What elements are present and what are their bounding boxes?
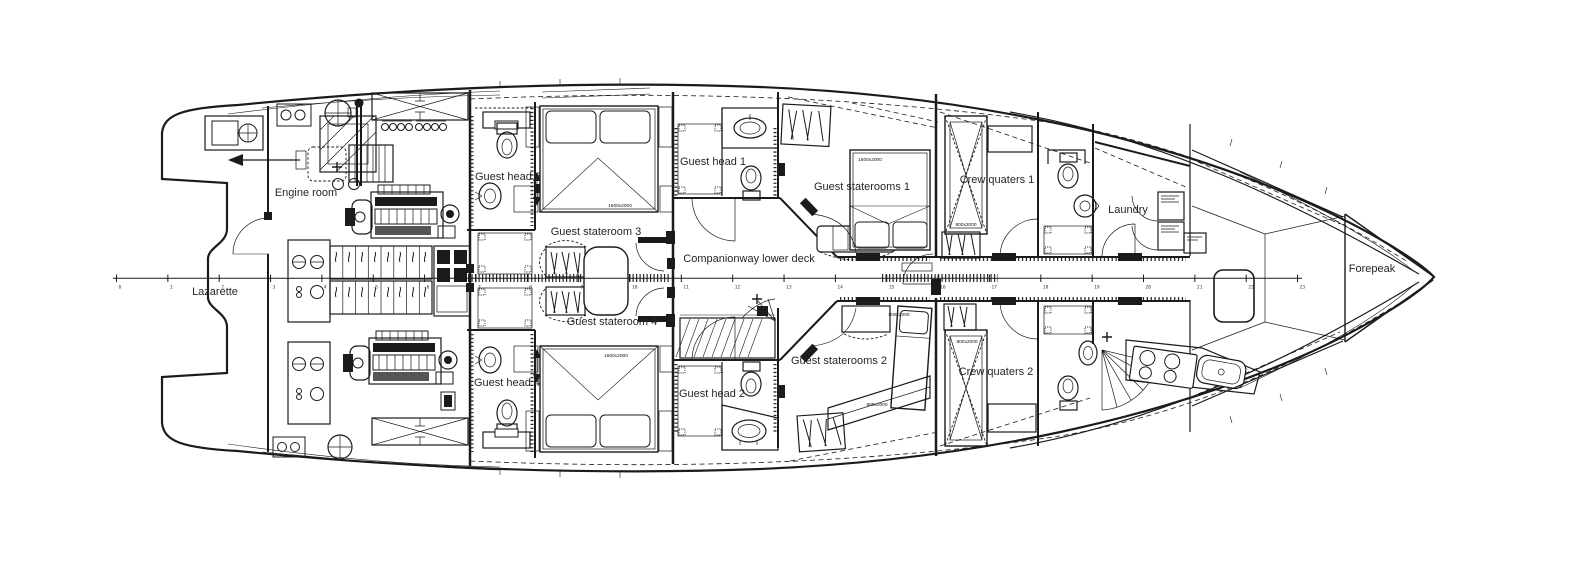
label-guest-stateroom-3: Guest stateroom 3: [551, 226, 642, 238]
dim-staterooms2-lower: 800x2000: [866, 402, 887, 408]
ruler-tick-label: 8: [529, 285, 532, 291]
bed-stateroom3: [540, 106, 658, 212]
ruler-tick-label: 15: [889, 285, 895, 291]
sink-crew2: [1079, 341, 1097, 365]
room-lazarette: [205, 116, 306, 254]
room-guest-head-1: [678, 108, 778, 241]
label-companionway: Companionway lower deck: [683, 253, 815, 265]
ruler-tick-label: 12: [735, 285, 741, 291]
vent-hatch-circle-top: [325, 100, 356, 126]
door-crew1: [1000, 219, 1038, 257]
sink-head2: [722, 405, 778, 450]
shower-crew2: [1044, 306, 1092, 334]
ruler-tick-label: 10: [632, 285, 638, 291]
ruler-tick-label: 16: [940, 285, 946, 291]
sink-head3: [475, 183, 501, 209]
ruler-tick-label: 7: [478, 285, 481, 291]
shower-head2: [678, 366, 722, 436]
ruler-tick-label: 0: [119, 285, 122, 291]
stove: [1129, 346, 1197, 389]
label-laundry: Laundry: [1108, 204, 1148, 216]
room-guest-head-2: [678, 163, 785, 450]
crew-head-2: [1044, 306, 1097, 410]
main-engine-starboard: [343, 331, 457, 384]
bed-stateroom4: [540, 346, 658, 452]
deck-hatch-crossed-bottom: [372, 418, 468, 445]
label-forepeak: Forepeak: [1349, 263, 1396, 275]
ruler-tick-label: 23: [1300, 285, 1306, 291]
stateroom-corridor-doors: [636, 231, 675, 327]
floor-plan-canvas: 01234567891011121314151617181920212223 L…: [0, 0, 1580, 562]
toilet-crew1: [1058, 153, 1078, 188]
exhaust-block-striped: [349, 145, 393, 182]
switchboard: [434, 246, 470, 316]
shelf-st2: [842, 306, 890, 339]
dim-stateroom4: 1600x2000: [604, 353, 628, 359]
genset-box: [320, 116, 376, 190]
room-guest-stateroom-3: [514, 106, 673, 322]
sink-crew1: [1074, 195, 1099, 217]
galley-sink: [1195, 354, 1247, 390]
ruler-tick-label: 4: [324, 285, 327, 291]
vent-hatch-circle-bottom: [328, 435, 352, 459]
ruler-tick-label: 20: [1146, 285, 1152, 291]
label-guest-stateroom-4: Guest stateroom 4: [567, 316, 658, 328]
label-crew-quaters-2: Crew quaters 2: [959, 366, 1034, 378]
door-laundry: [1102, 224, 1135, 257]
generator-lower: [288, 342, 330, 424]
pump-top-left: [277, 104, 311, 126]
main-engine-port: [345, 185, 459, 238]
label-engine-room: Engine room: [275, 187, 337, 199]
room-guest-staterooms-1: [781, 104, 930, 252]
ruler-tick-label: 17: [991, 285, 997, 291]
washer-stack: [1132, 192, 1206, 253]
deck-hatch-crossed-top: [372, 93, 468, 120]
toilet-head1: [741, 166, 761, 200]
ruler-tick-label: 14: [837, 285, 843, 291]
label-guest-staterooms-2: Guest staterooms 2: [791, 355, 887, 367]
dim-crew1: 800x2000: [955, 222, 976, 228]
centerline-ruler: 01234567891011121314151617181920212223: [113, 275, 1305, 291]
engine-mounts: [382, 121, 447, 131]
ruler-tick-label: 22: [1248, 285, 1254, 291]
seat-pouf: [584, 247, 628, 315]
label-guest-staterooms-1: Guest staterooms 1: [814, 181, 910, 193]
room-guest-stateroom-4: [514, 346, 673, 452]
label-guest-head-3: Guest head 3: [475, 171, 541, 183]
ruler-tick-label: 1: [170, 285, 173, 291]
bed-staterooms2: [891, 306, 932, 410]
sink-head1: [734, 114, 766, 138]
shower-crew1: [1044, 226, 1092, 254]
ruler-tick-label: 11: [683, 285, 689, 291]
toilet-crew2: [1058, 376, 1078, 410]
sink-head4: [475, 347, 501, 373]
battery-banks: [330, 246, 432, 314]
label-crew-quaters-1: Crew quaters 1: [960, 174, 1035, 186]
dim-staterooms1: 1600x2000: [858, 157, 882, 163]
door-crew2: [1000, 301, 1038, 339]
room-guest-staterooms-2: [797, 306, 932, 452]
er-door-frame-top: [466, 264, 474, 273]
label-lazarette: Lazarette: [192, 286, 238, 298]
wardrobe-st1: [781, 104, 831, 146]
wardrobe-st3-upper: [540, 241, 587, 278]
steering-gear: [205, 116, 263, 150]
ruler-tick-label: 18: [1043, 285, 1049, 291]
aux-unit: [441, 392, 455, 410]
ruler-tick-label: 6: [427, 285, 430, 291]
shelf-crew1: [988, 126, 1032, 152]
hanger-crew1: [942, 232, 980, 258]
dim-staterooms2-upper: 800x2000: [888, 312, 909, 318]
bed-staterooms1: [850, 150, 930, 250]
lazarette-door: [233, 212, 272, 254]
ruler-tick-label: 3: [273, 285, 276, 291]
label-guest-head-1: Guest head 1: [680, 156, 746, 168]
dim-crew2: 800x2000: [956, 339, 977, 345]
lower-deck-plan: 01234567891011121314151617181920212223 L…: [0, 0, 1580, 562]
ruler-tick-label: 5: [375, 285, 378, 291]
shelf-crew2: [988, 404, 1036, 432]
wardrobe-st2: [797, 413, 845, 452]
label-guest-head-4: Guest head 4: [474, 377, 540, 389]
crew-head-1: [1044, 150, 1099, 254]
stairs-main: [676, 294, 775, 358]
dim-stateroom3: 1600x2000: [608, 203, 632, 209]
er-door-frame-bottom: [466, 283, 474, 292]
ruler-tick-label: 19: [1094, 285, 1100, 291]
ruler-tick-label: 9: [581, 285, 584, 291]
door-head1: [692, 198, 735, 241]
hanger-crew2: [944, 304, 976, 330]
ruler-tick-label: 13: [786, 285, 792, 291]
ruler-ticks: 01234567891011121314151617181920212223: [117, 275, 1306, 291]
bunk-crew2: [945, 330, 987, 446]
ruler-tick-label: 21: [1197, 285, 1203, 291]
label-guest-head-2: Guest head 2: [679, 388, 745, 400]
generator-upper: [288, 240, 330, 322]
